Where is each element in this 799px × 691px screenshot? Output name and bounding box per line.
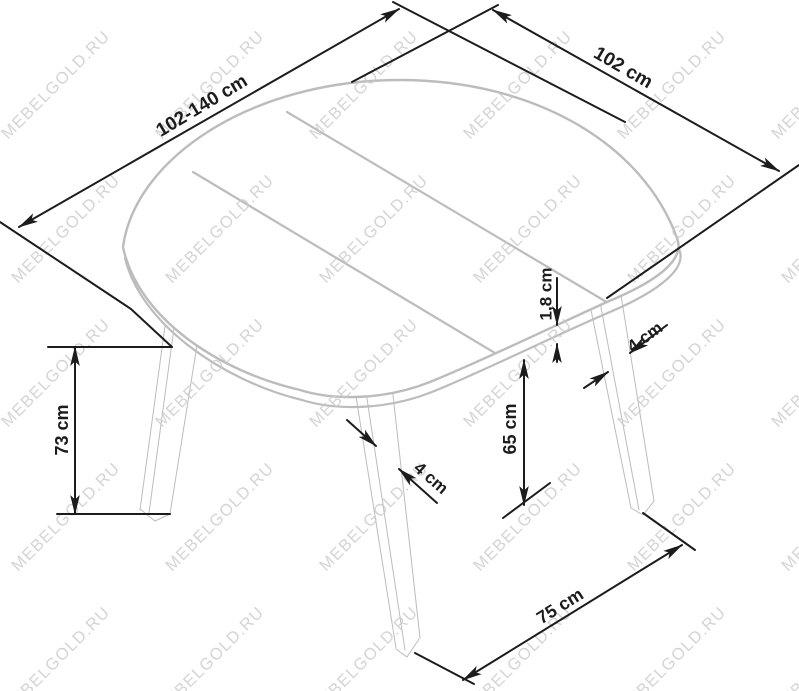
watermark-text: MEBELGOLD.RU [624, 459, 740, 575]
watermark-text: MEBELGOLD.RU [316, 459, 432, 575]
dim-label-rear-leg: 4 cm [624, 318, 667, 356]
watermark-text: MEBELGOLD.RU [470, 459, 586, 575]
extension-line [352, 5, 498, 82]
diagram-canvas: MEBELGOLD.RUMEBELGOLD.RUMEBELGOLD.RUMEBE… [0, 0, 799, 691]
watermark-text: MEBELGOLD.RU [768, 315, 799, 431]
watermark-text: MEBELGOLD.RU [152, 603, 268, 691]
watermark-text: MEBELGOLD.RU [162, 459, 278, 575]
watermark-text: MEBELGOLD.RU [768, 603, 799, 691]
leg-edge [392, 386, 420, 638]
dim-label-clearance: 65 cm [500, 403, 520, 454]
watermark-text: MEBELGOLD.RU [8, 171, 124, 287]
dim-label-top-thickness: 1,8 cm [537, 268, 556, 321]
dim-label-width: 102 cm [590, 43, 656, 93]
dim-line-leg-span [463, 545, 682, 680]
dim-arrow-front-leg [347, 420, 376, 446]
watermark-text: MEBELGOLD.RU [768, 27, 799, 143]
table-dimension-diagram: MEBELGOLD.RUMEBELGOLD.RUMEBELGOLD.RUMEBE… [0, 0, 799, 691]
watermark-text: MEBELGOLD.RU [778, 171, 799, 287]
watermark-text: MEBELGOLD.RU [8, 459, 124, 575]
dim-label-height: 73 cm [52, 404, 72, 455]
watermark-text: MEBELGOLD.RU [614, 603, 730, 691]
extension-line [415, 653, 474, 684]
watermark-text: MEBELGOLD.RU [614, 315, 730, 431]
watermark-text: MEBELGOLD.RU [614, 27, 730, 143]
watermark-text: MEBELGOLD.RU [0, 603, 114, 691]
watermark-text: MEBELGOLD.RU [0, 27, 114, 143]
watermark-text: MEBELGOLD.RU [778, 459, 799, 575]
dim-arrow-rear-leg [584, 372, 608, 388]
